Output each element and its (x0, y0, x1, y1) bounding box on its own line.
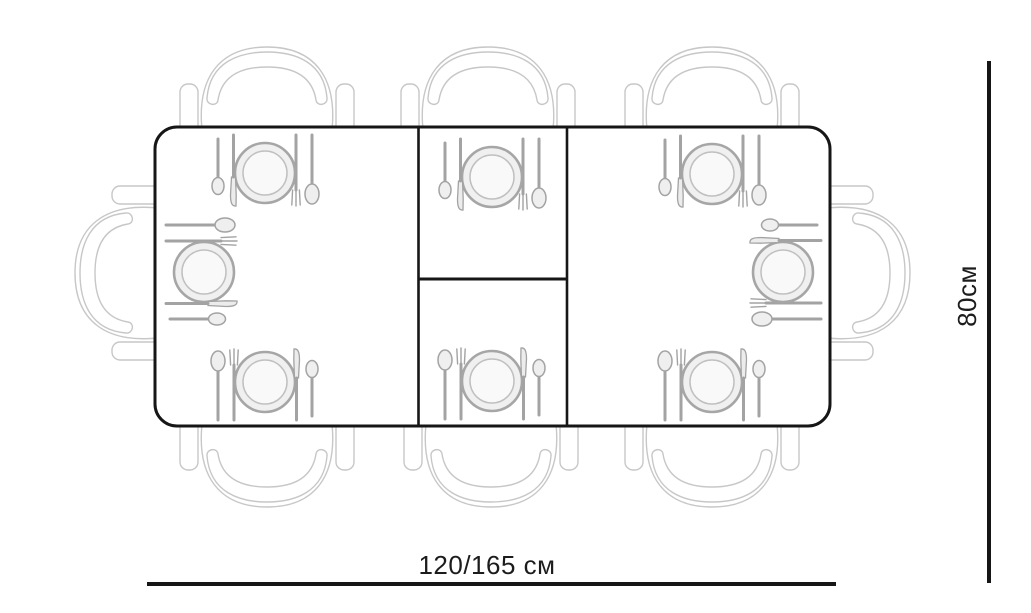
depth-dimension-label: 80см (953, 246, 981, 346)
width-dimension-label: 120/165 см (387, 551, 587, 579)
diagram-canvas (0, 0, 1031, 613)
table-layout-diagram: 120/165 см 80см (0, 0, 1031, 613)
